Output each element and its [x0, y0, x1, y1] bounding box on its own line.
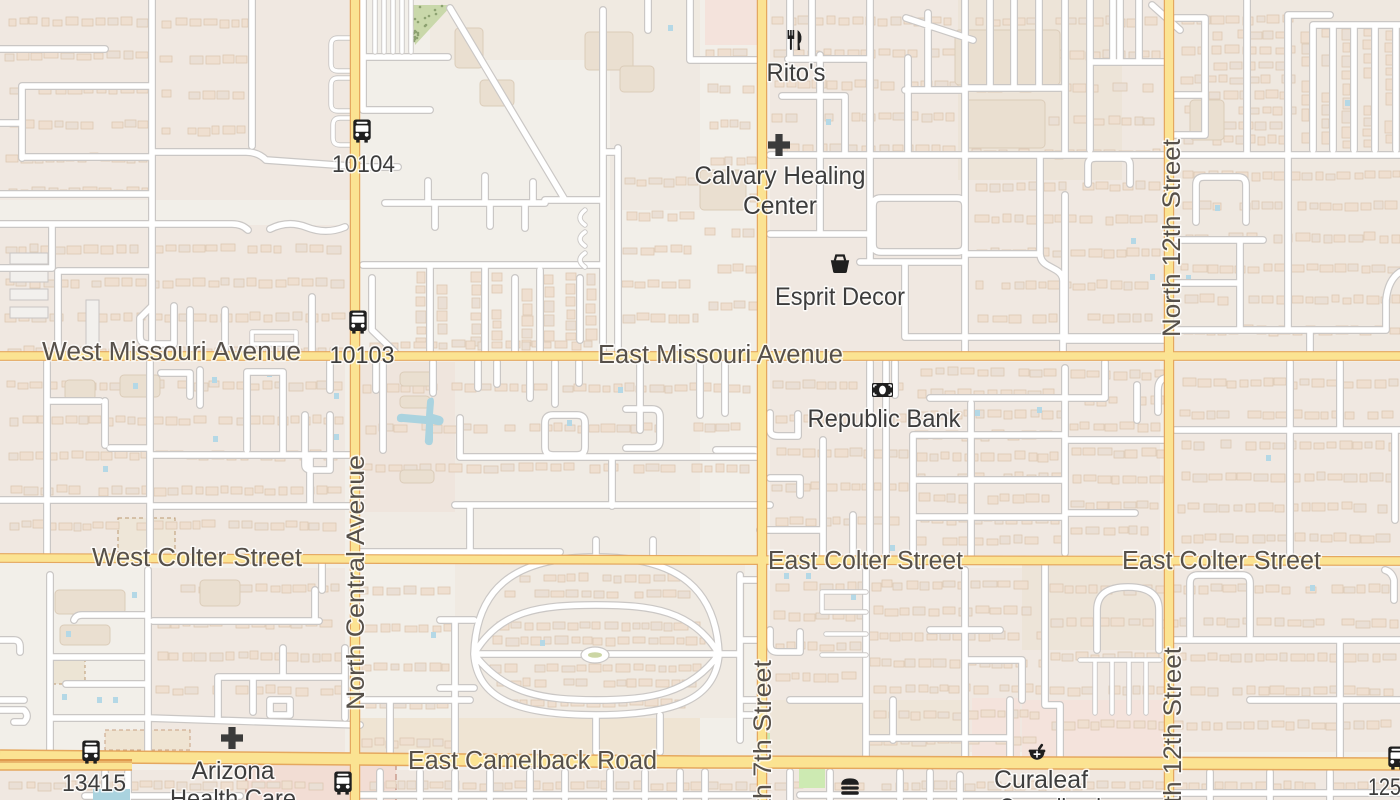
svg-text:West Missouri Avenue: West Missouri Avenue [42, 338, 301, 366]
svg-text:West Colter Street: West Colter Street [92, 544, 302, 572]
svg-text:Curaleaf: Curaleaf [994, 766, 1088, 794]
svg-text:Republic Bank: Republic Bank [808, 405, 961, 433]
svg-text:Camelback: Camelback [999, 794, 1107, 800]
svg-text:East Missouri Avenue: East Missouri Avenue [598, 341, 843, 369]
svg-text:10104: 10104 [332, 151, 395, 178]
svg-text:Esprit Decor: Esprit Decor [775, 283, 905, 311]
svg-text:13415: 13415 [62, 770, 126, 797]
svg-text:Rito's: Rito's [767, 59, 826, 87]
svg-text:Health Care: Health Care [170, 785, 296, 800]
svg-text:10103: 10103 [330, 342, 395, 369]
svg-text:East Camelback Road: East Camelback Road [408, 747, 657, 775]
svg-text:Arizona: Arizona [192, 757, 275, 785]
svg-text:North Central Avenue: North Central Avenue [342, 455, 370, 710]
svg-text:East Colter Street: East Colter Street [1122, 547, 1321, 575]
svg-text:North 12th Street: North 12th Street [1158, 139, 1186, 337]
svg-text:Calvary Healing: Calvary Healing [695, 162, 866, 190]
svg-text:North 12th Street: North 12th Street [1159, 647, 1187, 800]
svg-text:East Colter Street: East Colter Street [768, 547, 963, 575]
svg-text:12528: 12528 [1368, 774, 1400, 800]
svg-text:Center: Center [743, 192, 817, 220]
svg-text:North 7th Street: North 7th Street [749, 660, 777, 800]
